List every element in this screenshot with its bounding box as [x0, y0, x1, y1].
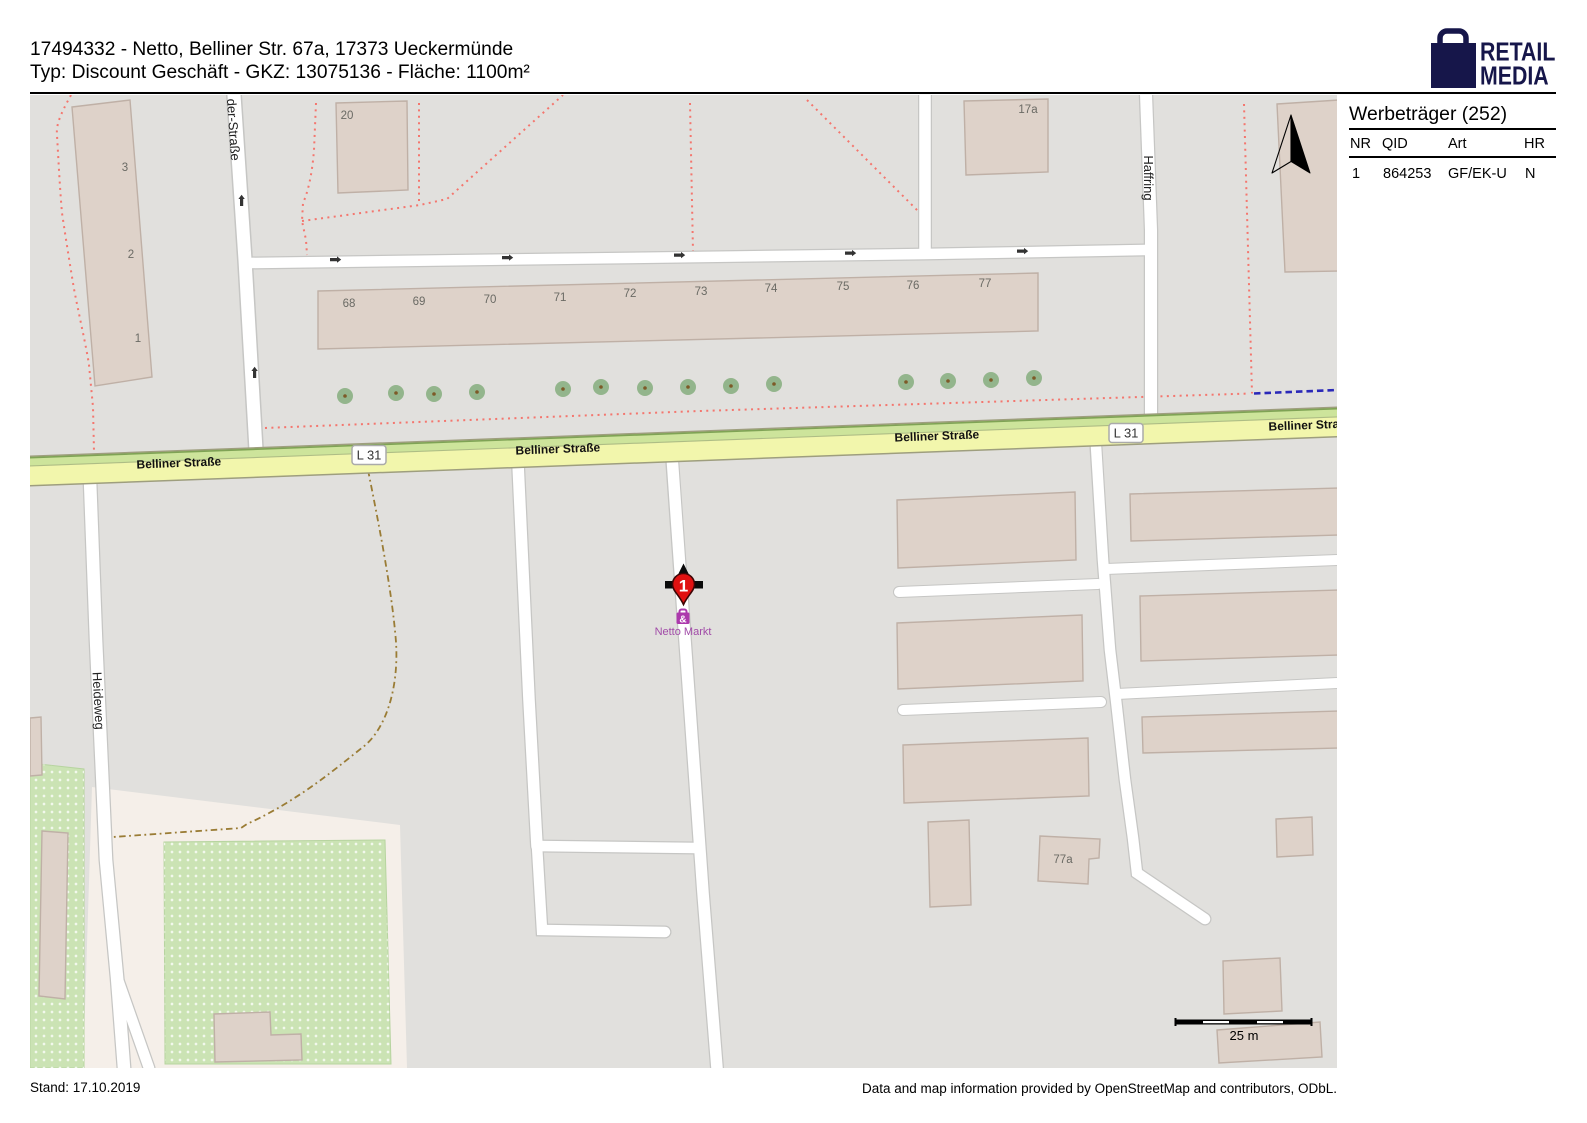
- svg-text:3: 3: [122, 162, 128, 174]
- svg-text:73: 73: [695, 286, 708, 298]
- svg-text:Haffring: Haffring: [1141, 155, 1156, 200]
- svg-text:1: 1: [135, 333, 141, 345]
- svg-text:MEDIA: MEDIA: [1480, 62, 1549, 92]
- svg-text:74: 74: [765, 283, 778, 295]
- svg-text:17a: 17a: [1018, 104, 1038, 116]
- svg-text:L 31: L 31: [1114, 426, 1139, 441]
- svg-text:72: 72: [624, 288, 637, 300]
- svg-text:20: 20: [341, 110, 354, 122]
- svg-text:2: 2: [128, 249, 134, 261]
- svg-text:70: 70: [484, 294, 497, 306]
- svg-text:25 m: 25 m: [1230, 1028, 1259, 1043]
- svg-text:Heideweg: Heideweg: [89, 671, 107, 730]
- svg-text:76: 76: [907, 280, 920, 292]
- svg-text:68: 68: [343, 298, 356, 310]
- svg-text:L 31: L 31: [357, 448, 382, 463]
- svg-text:Belliner Straße: Belliner Straße: [1268, 416, 1337, 433]
- svg-text:69: 69: [413, 296, 426, 308]
- svg-text:&: &: [679, 615, 686, 626]
- svg-text:1: 1: [679, 577, 688, 596]
- svg-text:77: 77: [979, 278, 992, 290]
- svg-text:Netto Markt: Netto Markt: [655, 626, 712, 638]
- svg-text:71: 71: [554, 292, 567, 304]
- svg-text:75: 75: [837, 281, 850, 293]
- svg-text:77a: 77a: [1053, 854, 1073, 866]
